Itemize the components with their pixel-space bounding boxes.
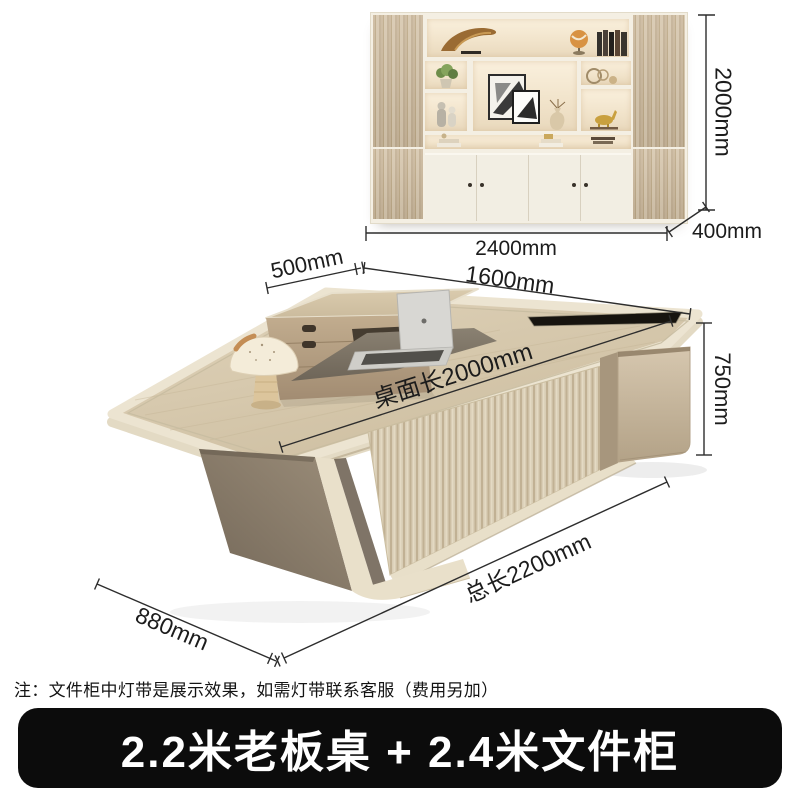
bronze-sculpture-decor	[439, 25, 503, 60]
door-seam	[528, 155, 529, 221]
cable-grommet	[528, 312, 682, 326]
product-title-banner: 2.2米老板桌 + 2.4米文件柜	[18, 708, 782, 788]
return-depth-label: 500mm	[268, 244, 345, 285]
desktop-length-label: 桌面长2000mm	[368, 331, 536, 414]
plant-decor	[431, 63, 461, 94]
rings-ornament-decor	[586, 63, 619, 90]
cabinet-height-label: 2000mm	[710, 67, 737, 156]
figurine-decor	[434, 99, 460, 136]
total-length-label: 总长2200mm	[458, 522, 595, 609]
door-knob	[572, 183, 576, 187]
cabinet-width-label: 2400mm	[475, 237, 557, 261]
right-pedestal-cabinet	[600, 347, 690, 471]
floor-shadows	[170, 462, 707, 623]
door-knob	[468, 183, 472, 187]
cabinet-depth-label: 400mm	[692, 220, 762, 244]
cabinet-left-wood-door-lower	[373, 149, 423, 219]
product-title: 2.2米老板桌 + 2.4米文件柜	[121, 716, 679, 780]
product-spec-image: 2000mm 2400mm 400mm 500mm 1600mm 桌面长2000…	[0, 0, 800, 800]
cup-stack-decor	[538, 131, 564, 153]
cabinet-lower-doors	[425, 153, 631, 221]
cabinet-right-wood-door-lower	[633, 149, 685, 219]
door-seam	[476, 155, 477, 221]
tray-stack-decor	[435, 133, 463, 153]
picture-frames-decor	[483, 73, 543, 134]
mushroom-lamp	[230, 336, 298, 410]
desk-width-label: 1600mm	[464, 260, 556, 299]
books-decor	[597, 26, 631, 61]
globe-decor	[566, 28, 592, 61]
cabinet-right-wood-door	[633, 15, 685, 147]
cabinet-left-wood-door	[373, 15, 423, 147]
gold-deer-decor	[587, 107, 621, 136]
door-knob	[480, 183, 484, 187]
file-cabinet-illustration	[370, 12, 688, 224]
flat-books-decor	[589, 133, 617, 151]
door-knob	[584, 183, 588, 187]
desk-depth-label: 880mm	[131, 602, 212, 657]
door-seam	[580, 155, 581, 221]
desk-height-label: 750mm	[709, 352, 735, 425]
lighting-note: 注：文件柜中灯带是展示效果，如需灯带联系客服（费用另加）	[14, 676, 498, 701]
desk-leg	[199, 449, 470, 600]
